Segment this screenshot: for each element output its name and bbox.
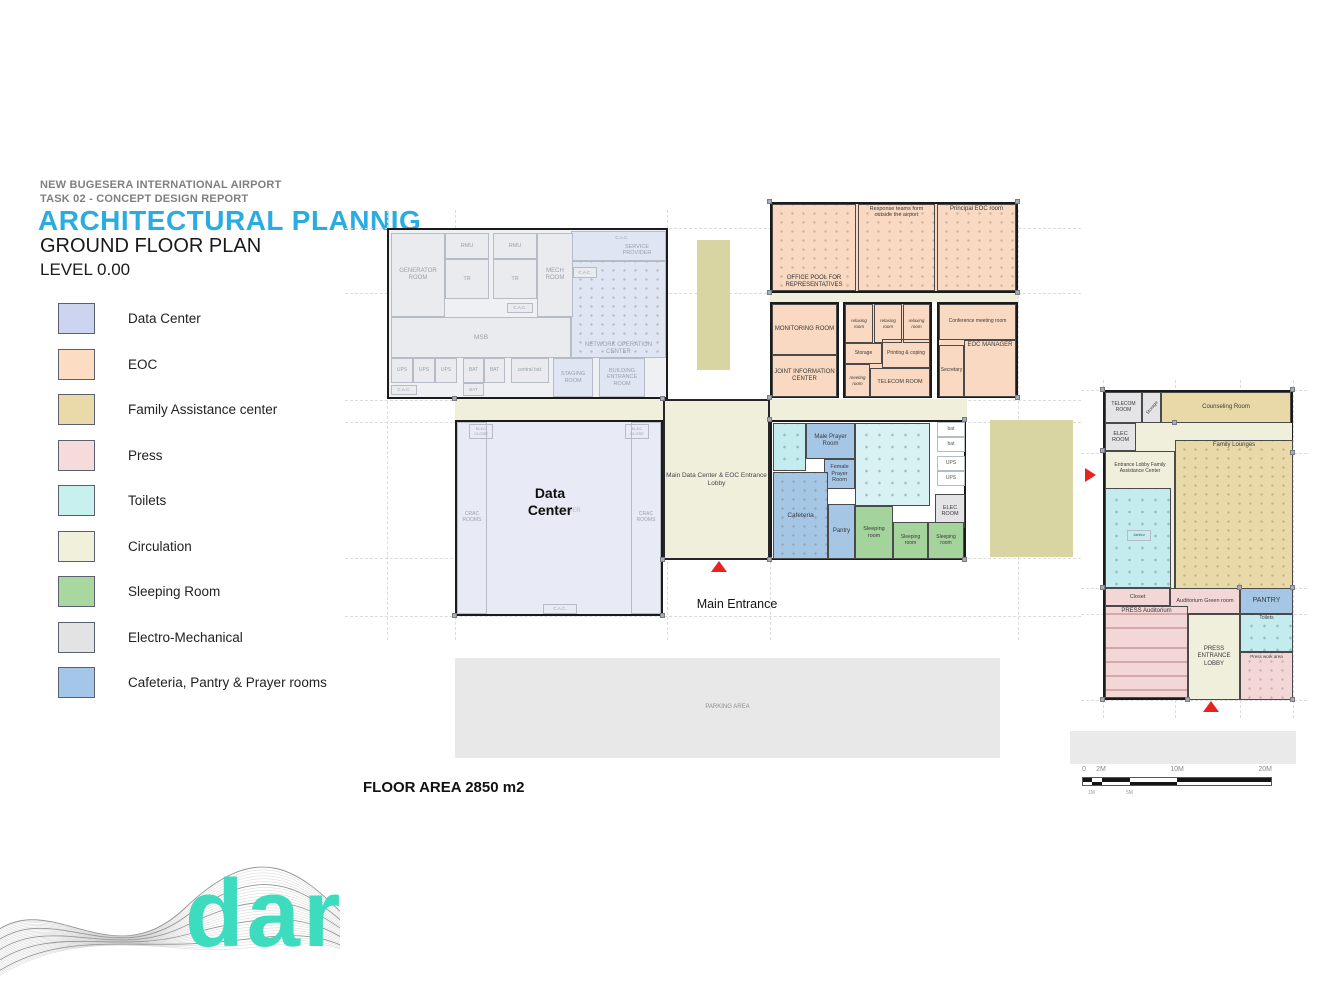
parking-area: PARKING AREA	[455, 658, 1000, 758]
legend: Data CenterEOCFamily Assistance centerPr…	[58, 303, 327, 713]
eoc-manager: EOC MANAGER	[964, 340, 1016, 397]
janitor-label: Janitor	[1132, 532, 1146, 539]
legend-item: Family Assistance center	[58, 394, 327, 425]
grid-node	[1290, 697, 1295, 702]
scale-tick-label: 2M	[1096, 766, 1106, 773]
legend-item: Circulation	[58, 531, 327, 562]
grid-node	[1185, 697, 1190, 702]
grid-node	[1237, 585, 1242, 590]
building-entrance-room: BUILDING ENTRANCE ROOM	[599, 358, 645, 397]
bat-e1-label: bat	[947, 426, 956, 434]
legend-swatch-data_center	[58, 303, 95, 334]
joint-information-center: JOINT INFORMATION CENTER	[772, 355, 837, 397]
entrance-marker	[1085, 468, 1096, 482]
legend-label: Press	[128, 448, 163, 463]
crac-rooms-left-label: CRAC ROOMS	[458, 511, 486, 525]
legend-swatch-sleeping	[58, 576, 95, 607]
legend-swatch-circulation	[58, 531, 95, 562]
pantry-fac: PANTRY	[1240, 588, 1293, 614]
bat-e2: bat	[937, 437, 965, 452]
bat-1-label: BAT	[468, 367, 479, 375]
parking-area-label: PARKING AREA	[704, 703, 750, 712]
grid-node	[767, 199, 772, 204]
generator-room-label: GENERATOR ROOM	[392, 267, 444, 283]
entrance-lobby-main: Main Data Center & EOC Entrance Lobby	[663, 399, 770, 560]
landscape-1	[697, 240, 730, 370]
legend-label: Sleeping Room	[128, 584, 220, 599]
pantry: Pantry	[828, 504, 855, 559]
scale-segment	[1177, 782, 1271, 786]
ups-e1: UPS	[937, 456, 965, 471]
scale-sub-label: 1M	[1088, 790, 1095, 796]
scale-labels: 02M10M20M	[1082, 766, 1272, 775]
scale-segment	[1130, 782, 1177, 786]
brand-logo: dar	[0, 858, 430, 1008]
legend-label: Toilets	[128, 493, 166, 508]
main-entrance-label: Main Entrance	[693, 587, 781, 621]
grid-node	[1100, 697, 1105, 702]
telecom-room-eoc-label: TELECOM ROOM	[876, 378, 923, 386]
secretary: Secretary	[939, 345, 964, 397]
cac-mid-label: C.A.C.	[577, 269, 592, 276]
scale-sub-label: 5M	[1126, 790, 1133, 796]
male-prayer-room: Male Prayer Room	[806, 423, 855, 459]
relaxing-room-1: relaxing room	[845, 304, 873, 343]
legend-swatch-toilets	[58, 485, 95, 516]
elec-room-fac: ELEC ROOM	[1105, 423, 1136, 451]
legend-swatch-press	[58, 440, 95, 471]
sleeping-room-3: Sleeping room	[928, 522, 964, 559]
ups-1-label: UPS	[396, 367, 408, 375]
sleeping-room-1: Sleeping room	[855, 506, 893, 559]
press-auditorium: PRESS Auditorium	[1105, 606, 1188, 698]
bat-2-label: BAT	[489, 367, 500, 375]
scale-segments	[1082, 777, 1272, 786]
rmu-1-label: RMU	[460, 242, 475, 250]
counseling-room-label: Counseling Room	[1201, 403, 1251, 412]
ups-3: UPS	[435, 358, 457, 383]
entrance-marker	[711, 561, 727, 572]
elec-room-fac-label: ELEC ROOM	[1106, 430, 1135, 445]
pantry-label: Pantry	[832, 527, 851, 536]
telecom-room-fac: TELECOM ROOM	[1105, 392, 1142, 423]
legend-item: EOC	[58, 349, 327, 380]
cac-msb-label: C.A.C.	[512, 304, 527, 311]
relaxing-room-3: relaxing room	[903, 304, 930, 343]
sleeping-room-1-label: Sleeping room	[856, 525, 892, 540]
closet: Closet	[1105, 588, 1170, 606]
conference-meeting-room: Conference meeting room	[939, 304, 1016, 340]
elec-closet-2-label: ELEC CLOSE	[626, 426, 648, 437]
legend-item: Press	[58, 440, 327, 471]
elec-closet-1: ELEC CLOSE	[469, 424, 493, 439]
cafeteria-label: Cafeteria	[786, 511, 814, 521]
mech-room-label: MECH ROOM	[538, 267, 572, 283]
entrance-marker	[1203, 701, 1219, 712]
bat-3: BAT	[463, 383, 484, 396]
ups-2: UPS	[413, 358, 435, 383]
ups-e2: UPS	[937, 471, 965, 486]
legend-swatch-electro	[58, 622, 95, 653]
secretary-label: Secretary	[940, 367, 963, 375]
legend-item: Cafeteria, Pantry & Prayer rooms	[58, 667, 327, 698]
entrance-lobby-fac-label: Entrance Lobby Family Assistance Center	[1107, 456, 1173, 482]
monitoring-room-label: MONITORING ROOM	[774, 325, 835, 334]
entrance-lobby-fac-label-label: Entrance Lobby Family Assistance Center	[1107, 462, 1173, 476]
brand-logo-text: dar	[185, 842, 343, 986]
eoc-manager-label: EOC MANAGER	[966, 341, 1013, 350]
grid-node	[660, 396, 665, 401]
ups-2-label: UPS	[418, 367, 430, 375]
monitoring-room: MONITORING ROOM	[772, 304, 837, 355]
grid-node	[1290, 450, 1295, 455]
legend-item: Electro-Mechanical	[58, 622, 327, 653]
press-auditorium-label: PRESS Auditorium	[1120, 607, 1172, 616]
storage-fac: Storage	[1142, 392, 1161, 423]
relaxing-room-2: relaxing room	[874, 304, 902, 343]
toilets-press: Toilets	[1240, 614, 1293, 652]
grid-node	[767, 290, 772, 295]
grid-node	[767, 417, 772, 422]
crac-rooms-right-label: CRAC ROOMS	[632, 511, 660, 525]
rmu-2: RMU	[493, 233, 537, 259]
cafeteria: Cafeteria	[773, 472, 828, 559]
bat-3-label: BAT	[468, 386, 478, 393]
scale-tick-label: 10M	[1170, 766, 1184, 773]
grid-node	[1015, 199, 1020, 204]
grid-node	[1100, 387, 1105, 392]
tr-2-label: TR	[510, 275, 519, 283]
msb-label: MSB	[473, 333, 489, 343]
ups-1: UPS	[391, 358, 413, 383]
office-pool-label: OFFICE POOL FOR REPRESENTATIVES	[773, 274, 855, 290]
plan-subtitle: GROUND FLOOR PLAN	[40, 235, 261, 258]
network-operation-center-label: NETWORK OPERATION CENTER	[572, 341, 665, 357]
page-title: ARCHITECTURAL PLANNIG	[38, 205, 421, 237]
main-floor-plan: Main Data Center & EOC Entrance LobbyC.A…	[375, 195, 1081, 770]
meeting-room: meeting room	[845, 364, 870, 397]
legend-label: EOC	[128, 357, 157, 372]
grid-node	[962, 417, 967, 422]
grid-node	[767, 395, 772, 400]
rmu-1: RMU	[445, 233, 489, 259]
grid-node	[660, 613, 665, 618]
bat-1: BAT	[463, 358, 484, 383]
cac-data-center: C.A.C.	[543, 604, 577, 614]
storage-fac-label: Storage	[1143, 398, 1160, 416]
data-center-label-label: Data Center	[515, 484, 585, 519]
principal-eoc-room-label: Principal EOC room	[949, 205, 1004, 214]
grid-node	[1290, 585, 1295, 590]
office-pool: OFFICE POOL FOR REPRESENTATIVES	[772, 204, 856, 291]
grid-node	[1290, 387, 1295, 392]
press-entrance-lobby: PRESS ENTRANCE LOBBY	[1188, 614, 1240, 700]
legend-item: Sleeping Room	[58, 576, 327, 607]
bat-e1: bat	[937, 422, 965, 437]
pantry-fac-label: PANTRY	[1252, 596, 1282, 606]
cac-bottom: C.A.C.	[391, 385, 417, 395]
scale-segment	[1102, 782, 1130, 786]
telecom-room-eoc: TELECOM ROOM	[870, 368, 930, 397]
central-bat: central bat.	[511, 358, 549, 383]
family-lounges-label: Family Lounges	[1212, 441, 1256, 450]
auditorium-green-room-label: Auditorium Green room	[1175, 597, 1234, 605]
grid-node	[1100, 585, 1105, 590]
toilets-large	[855, 423, 930, 506]
cac-service-label-label: C.A.C.	[614, 234, 629, 241]
building-entrance-room-label: BUILDING ENTRANCE ROOM	[600, 367, 644, 388]
cac-data-center-label: C.A.C.	[552, 605, 567, 612]
scale-segment	[1083, 782, 1092, 786]
grid-node	[1015, 395, 1020, 400]
legend-item: Toilets	[58, 485, 327, 516]
press-work-area: Press work area	[1240, 652, 1293, 700]
project-title: NEW BUGESERA INTERNATIONAL AIRPORT	[40, 179, 281, 191]
legend-label: Data Center	[128, 311, 201, 326]
printing-coping: Printing & coping	[882, 339, 930, 368]
staging-room: STAGING ROOM	[553, 358, 593, 397]
scale-sub-labels: 1M5M	[1082, 790, 1272, 798]
grid-node	[452, 613, 457, 618]
relaxing-room-3-label: relaxing room	[904, 317, 929, 330]
service-provider-label: SERVICE PROVIDER	[609, 242, 665, 258]
press-work-area-label: Press work area	[1249, 653, 1284, 660]
legend-label: Circulation	[128, 539, 192, 554]
storage-eoc: Storage	[845, 343, 882, 364]
tr-1: TR	[445, 259, 489, 299]
scale-bar: 02M10M20M 1M5M	[1082, 766, 1272, 802]
level-label: LEVEL 0.00	[40, 260, 130, 280]
grid-line	[1293, 380, 1294, 718]
crac-rooms-left: CRAC ROOMS	[457, 422, 487, 614]
elec-closet-2: ELEC CLOSE	[625, 424, 649, 439]
legend-swatch-cafeteria	[58, 667, 95, 698]
central-bat-label: central bat.	[517, 367, 544, 375]
ups-e2-label: UPS	[945, 475, 957, 483]
conference-meeting-room-label: Conference meeting room	[948, 318, 1008, 326]
tr-1-label: TR	[462, 275, 471, 283]
press-entrance-lobby-label: PRESS ENTRANCE LOBBY	[1189, 645, 1239, 668]
family-assistance-press-plan: TELECOM ROOMStorageCounseling RoomELEC R…	[1095, 388, 1305, 728]
secondary-parking-strip	[1070, 731, 1296, 764]
legend-swatch-eoc	[58, 349, 95, 380]
principal-eoc-room: Principal EOC room	[937, 204, 1016, 291]
bat-e2-label: bat	[947, 441, 956, 449]
female-prayer-room-label: Female Prayer Room	[825, 463, 854, 484]
ups-3-label: UPS	[440, 367, 452, 375]
family-lounges: Family Lounges	[1175, 440, 1293, 590]
service-provider-label-label: SERVICE PROVIDER	[609, 243, 665, 258]
toilets-small	[773, 423, 806, 471]
sleeping-room-3-label: Sleeping room	[929, 534, 963, 548]
tr-2: TR	[493, 259, 537, 299]
printing-coping-label: Printing & coping	[886, 350, 926, 358]
closet-label: Closet	[1129, 593, 1147, 601]
response-teams-label: Response teams form outside the airport	[859, 205, 934, 220]
task-subtitle: TASK 02 - CONCEPT DESIGN REPORT	[40, 193, 248, 205]
data-center-label: Data Center	[515, 479, 585, 525]
scale-tick-label: 20M	[1258, 766, 1272, 773]
entrance-lobby-main-label: Main Data Center & EOC Entrance Lobby	[665, 471, 768, 488]
legend-swatch-family	[58, 394, 95, 425]
joint-information-center-label: JOINT INFORMATION CENTER	[773, 368, 836, 384]
telecom-room-fac-label: TELECOM ROOM	[1106, 401, 1141, 415]
grid-node	[660, 557, 665, 562]
cac-service-label: C.A.C.	[607, 233, 637, 242]
grid-node	[962, 557, 967, 562]
grid-node	[1172, 420, 1177, 425]
relaxing-room-1-label: relaxing room	[846, 317, 872, 330]
sleeping-room-2-label: Sleeping room	[894, 534, 927, 548]
generator-room: GENERATOR ROOM	[391, 233, 445, 317]
elec-room-label: ELEC ROOM	[936, 504, 964, 519]
response-teams: Response teams form outside the airport	[858, 204, 935, 291]
grid-node	[1015, 290, 1020, 295]
grid-node	[1100, 448, 1105, 453]
toilets-press-label: Toilets	[1258, 615, 1274, 623]
cac-mid: C.A.C.	[573, 267, 597, 278]
floor-area-label: FLOOR AREA 2850 m2	[363, 779, 524, 796]
grid-node	[452, 396, 457, 401]
grid-node	[767, 557, 772, 562]
grid-line	[1081, 700, 1307, 701]
main-entrance-label-label: Main Entrance	[696, 596, 779, 613]
scale-segment	[1092, 782, 1101, 786]
legend-item: Data Center	[58, 303, 327, 334]
legend-label: Family Assistance center	[128, 402, 277, 417]
legend-label: Electro-Mechanical	[128, 630, 243, 645]
crac-rooms-right: CRAC ROOMS	[631, 422, 661, 614]
male-prayer-room-label: Male Prayer Room	[807, 433, 854, 449]
landscape-2	[990, 420, 1073, 557]
page: NEW BUGESERA INTERNATIONAL AIRPORT TASK …	[0, 0, 1344, 1008]
cac-msb: C.A.C.	[507, 303, 533, 313]
elec-closet-1-label: ELEC CLOSE	[470, 426, 492, 437]
msb: MSB	[391, 317, 571, 358]
storage-eoc-label: Storage	[854, 350, 874, 358]
mech-room: MECH ROOM	[537, 233, 573, 317]
janitor: Janitor	[1127, 530, 1151, 541]
corridor-eoc	[770, 293, 1018, 302]
meeting-room-label: meeting room	[846, 374, 869, 387]
staging-room-label: STAGING ROOM	[554, 370, 592, 385]
rmu-2-label: RMU	[508, 242, 523, 250]
scale-tick-label: 0	[1082, 766, 1086, 773]
legend-label: Cafeteria, Pantry & Prayer rooms	[128, 675, 327, 690]
ups-e1-label: UPS	[945, 460, 957, 468]
cac-bottom-label: C.A.C.	[396, 386, 411, 393]
female-prayer-room: Female Prayer Room	[824, 459, 855, 489]
counseling-room: Counseling Room	[1161, 392, 1291, 423]
relaxing-room-2-label: relaxing room	[875, 317, 901, 330]
bat-2: BAT	[484, 358, 505, 383]
sleeping-room-2: Sleeping room	[893, 522, 928, 559]
